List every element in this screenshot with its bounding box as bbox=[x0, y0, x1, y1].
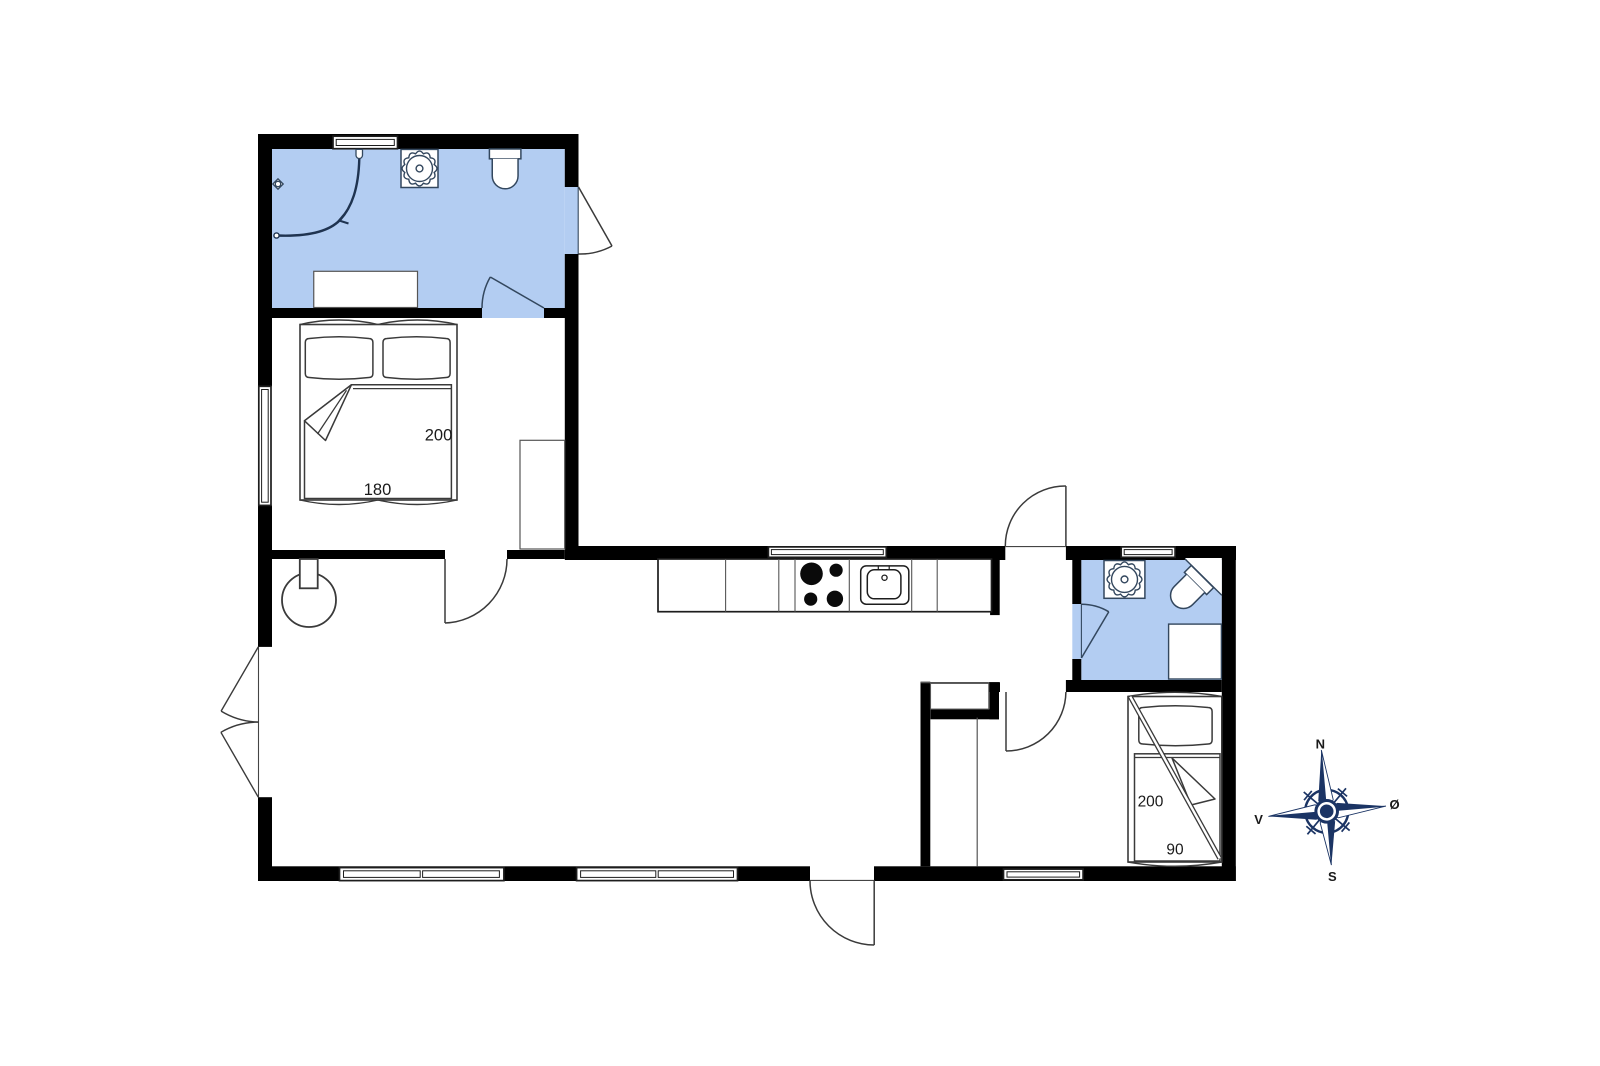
svg-text:200: 200 bbox=[425, 427, 453, 445]
svg-text:Ø: Ø bbox=[1389, 797, 1399, 812]
svg-text:S: S bbox=[1328, 869, 1337, 884]
svg-text:180: 180 bbox=[364, 481, 392, 499]
svg-text:V: V bbox=[1254, 812, 1263, 827]
svg-text:90: 90 bbox=[1166, 842, 1184, 859]
svg-text:200: 200 bbox=[1138, 794, 1164, 811]
svg-text:N: N bbox=[1316, 736, 1325, 751]
